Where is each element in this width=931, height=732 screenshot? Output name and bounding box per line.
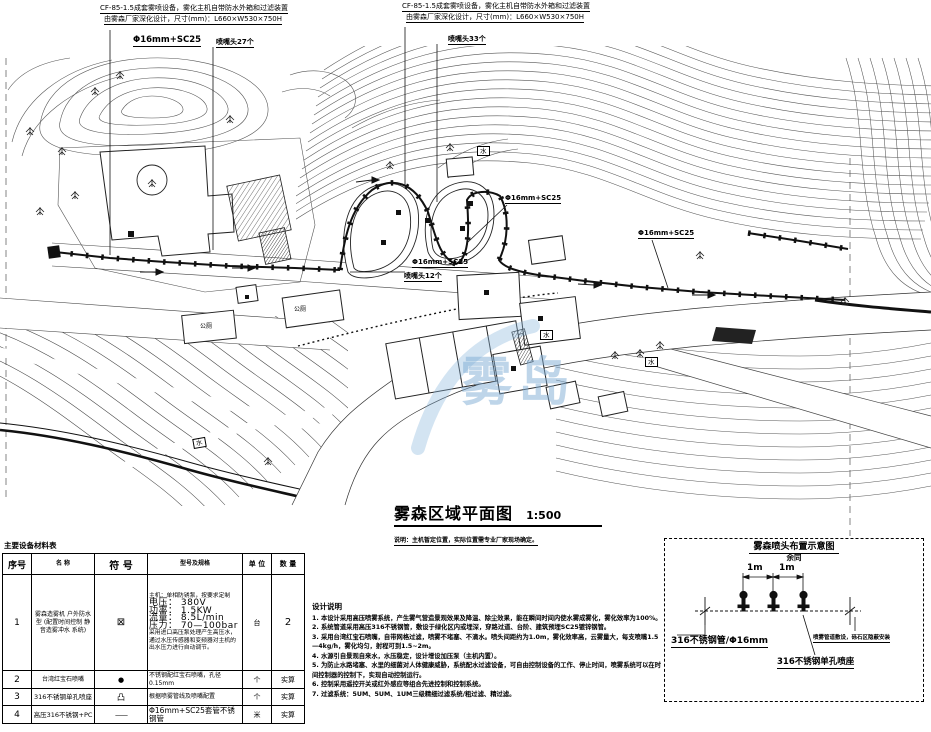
pipe-label-a: Φ16mm+SC25: [505, 194, 561, 202]
slope-paths: [0, 352, 335, 505]
design-notes: 设计说明 1. 本设计采用高压喷雾系统，产生雾气营造景观效果及降温、除尘效果，能…: [312, 601, 664, 699]
detail-dim-1: 1m: [747, 563, 763, 573]
row1-symbol: ⊠: [95, 575, 148, 671]
pipe-label-left: Φ16mm+SC25: [133, 35, 201, 45]
row1-no: 1: [3, 575, 32, 671]
detail-dim-2: 1m: [779, 563, 795, 573]
courtyard-circle: [137, 165, 167, 195]
plan-note: 说明：主机暂定位置，实际位置需专业厂家现场确定。: [394, 535, 538, 546]
design-note-item: 7. 过滤系统：5UM、5UM、1UM三级精细过滤系统/粗过滤、精过滤。: [312, 690, 664, 699]
label-water-2: 水: [540, 330, 553, 340]
col-symbol: 符 号: [95, 554, 148, 575]
plan-scale: 1:500: [526, 509, 561, 522]
row4-unit: 米: [243, 706, 272, 724]
detail-label-pipe: 316不锈钢管/Φ16mm: [671, 633, 768, 646]
label-toilet-1: 公厕: [200, 321, 212, 330]
design-note-item: 6. 控制采用遥控开关或红外感应等组合先进控制和控制系统。: [312, 680, 664, 689]
materials-table-grid: 序号 名 称 符 号 型号及规格 单 位 数 量 1 雾森造雾机 户外防水型 (…: [2, 553, 305, 724]
col-unit: 单 位: [243, 554, 272, 575]
contours-topleft-hill: [8, 58, 356, 156]
annotation-middle-line1: CF-85-1.5成套雾喷设备，雾化主机自带防水外箱和过滤装置: [402, 2, 590, 12]
row2-symbol: ●: [95, 671, 148, 689]
table-row: 2 台湾红宝石喷嘴 ● 不锈钢配红宝石喷嘴，孔径0.15mm 个 实算: [3, 671, 305, 689]
row3-no: 3: [3, 689, 32, 706]
label-water-3: 水: [645, 357, 658, 367]
table-row: 3 316不锈钢单孔喷座 凸 根据喷雾管线及喷嘴配置 个 实算: [3, 689, 305, 706]
detail-label-install: 喷雾管道敷设，砾石区隐蔽安装: [813, 633, 890, 641]
road-bottomright: [636, 340, 931, 448]
pipe-label-b: Φ16mm+SC25: [638, 229, 694, 237]
design-note-item: 2. 系统管道采用高压316不锈钢管，敷设于绿化区内或埋深，穿路过道、台阶、建筑…: [312, 623, 664, 632]
col-qty: 数 量: [272, 554, 305, 575]
row2-qty: 实算: [272, 671, 305, 689]
cad-sheet: 雾岛 CF-85-1.5成套雾喷设备，雾化主机自带防水外箱和过滤装置 由雾森厂家…: [0, 0, 931, 732]
annotation-middle: CF-85-1.5成套雾喷设备，雾化主机自带防水外箱和过滤装置 由雾森厂家深化设…: [402, 1, 590, 23]
row3-symbol: 凸: [95, 689, 148, 706]
nozzle-count-12: 喷嘴头12个: [404, 271, 442, 281]
title-block: 雾森区域平面图 1:500 说明：主机暂定位置，实际位置需专业厂家现场确定。: [394, 500, 602, 546]
annotation-left: CF-85-1.5成套雾喷设备，雾化主机自带防水外箱和过滤装置 由雾森厂家深化设…: [100, 3, 288, 25]
row4-name: 高压316不锈钢+PC: [32, 706, 95, 724]
road-left: [0, 298, 330, 350]
row3-spec: 根据喷雾管线及喷嘴配置: [148, 689, 243, 706]
design-note-item: 3. 采用台湾红宝石喷嘴，自带网格过滤，喷雾不堵塞、不滴水。喷头间距约为1.0m…: [312, 633, 664, 652]
row2-no: 2: [3, 671, 32, 689]
pipe-label-c: Φ16mm+SC25: [412, 258, 468, 266]
row3-unit: 个: [243, 689, 272, 706]
row2-spec: 不锈钢配红宝石喷嘴，孔径0.15mm: [148, 671, 243, 689]
nozzle-count-33: 喷嘴头33个: [448, 34, 486, 44]
materials-table-title: 主要设备材料表: [4, 540, 298, 551]
row4-spec: Φ16mm+SC25套管不锈钢管: [148, 706, 243, 724]
row3-qty: 实算: [272, 689, 305, 706]
spec-line: 压力： 70—100bar: [149, 623, 241, 631]
design-notes-title: 设计说明: [312, 601, 664, 612]
col-no: 序号: [3, 554, 32, 575]
table-row: 4 高压316不锈钢+PC —— Φ16mm+SC25套管不锈钢管 米 实算: [3, 706, 305, 724]
annotation-left-line1: CF-85-1.5成套雾喷设备，雾化主机自带防水外箱和过滤装置: [100, 4, 288, 14]
row3-name: 316不锈钢单孔喷座: [32, 689, 95, 706]
nozzle-detail-box: 316不锈钢管/Φ16mm 316不锈钢单孔喷座 喷雾管道敷设，砾石区隐蔽安装 …: [664, 538, 924, 702]
annotation-middle-line2: 由雾森厂家深化设计，尺寸(mm)：L660×W530×750H: [406, 13, 584, 23]
design-note-item: 1. 本设计采用高压喷雾系统，产生雾气营造景观效果及降温、除尘效果，能在瞬间时间…: [312, 614, 664, 623]
table-row: 1 雾森造雾机 户外防水型 (配置时间控制 静音造雾冲水 系统) ⊠ 主机：单相…: [3, 575, 305, 671]
stream-lines: [352, 100, 518, 178]
design-note-item: 5. 为防止水路堵塞、水里的细菌对人体健康威胁，系统配水过滤设备，可自由控制设备…: [312, 661, 664, 680]
col-spec: 型号及规格: [148, 554, 243, 575]
col-name: 名 称: [32, 554, 95, 575]
plan-title: 雾森区域平面图: [394, 500, 513, 524]
label-water-4: 水: [192, 437, 206, 449]
detail-label-nozzle: 316不锈钢单孔喷座: [777, 655, 854, 667]
title-underline: [394, 525, 602, 527]
annotation-left-line2: 由雾森厂家深化设计，尺寸(mm)：L660×W530×750H: [104, 15, 282, 25]
row1-spec: 主机：单相防锈泵，按要求定制 电压： 380V 功率： 1.5KW 流量： 8.…: [148, 575, 243, 671]
dark-structure: [712, 327, 756, 344]
row1-unit: 台: [243, 575, 272, 671]
nozzle-count-27: 喷嘴头27个: [216, 37, 254, 47]
spec-line: 采用进口高压泵处理产生高压水，通过水压传感器和变频器对主机的出水压力进行自动调节…: [149, 630, 241, 653]
row2-unit: 个: [243, 671, 272, 689]
row4-qty: 实算: [272, 706, 305, 724]
row2-name: 台湾红宝石喷嘴: [32, 671, 95, 689]
row1-name: 雾森造雾机 户外防水型 (配置时间控制 静音造雾冲水 系统): [32, 575, 95, 671]
row4-no: 4: [3, 706, 32, 724]
table-header-row: 序号 名 称 符 号 型号及规格 单 位 数 量: [3, 554, 305, 575]
site-plan-drawing: [0, 0, 931, 540]
design-note-item: 4. 水源引自景观自来水，水压稳定，设计增设加压泵（主机内置）。: [312, 652, 664, 661]
label-toilet-2: 公厕: [294, 304, 306, 313]
row1-qty: 2: [272, 575, 305, 671]
label-water-1: 水: [477, 146, 490, 156]
materials-table: 主要设备材料表 序号 名 称 符 号 型号及规格 单 位 数 量 1 雾森造雾机…: [2, 540, 298, 724]
row4-symbol: ——: [95, 706, 148, 724]
